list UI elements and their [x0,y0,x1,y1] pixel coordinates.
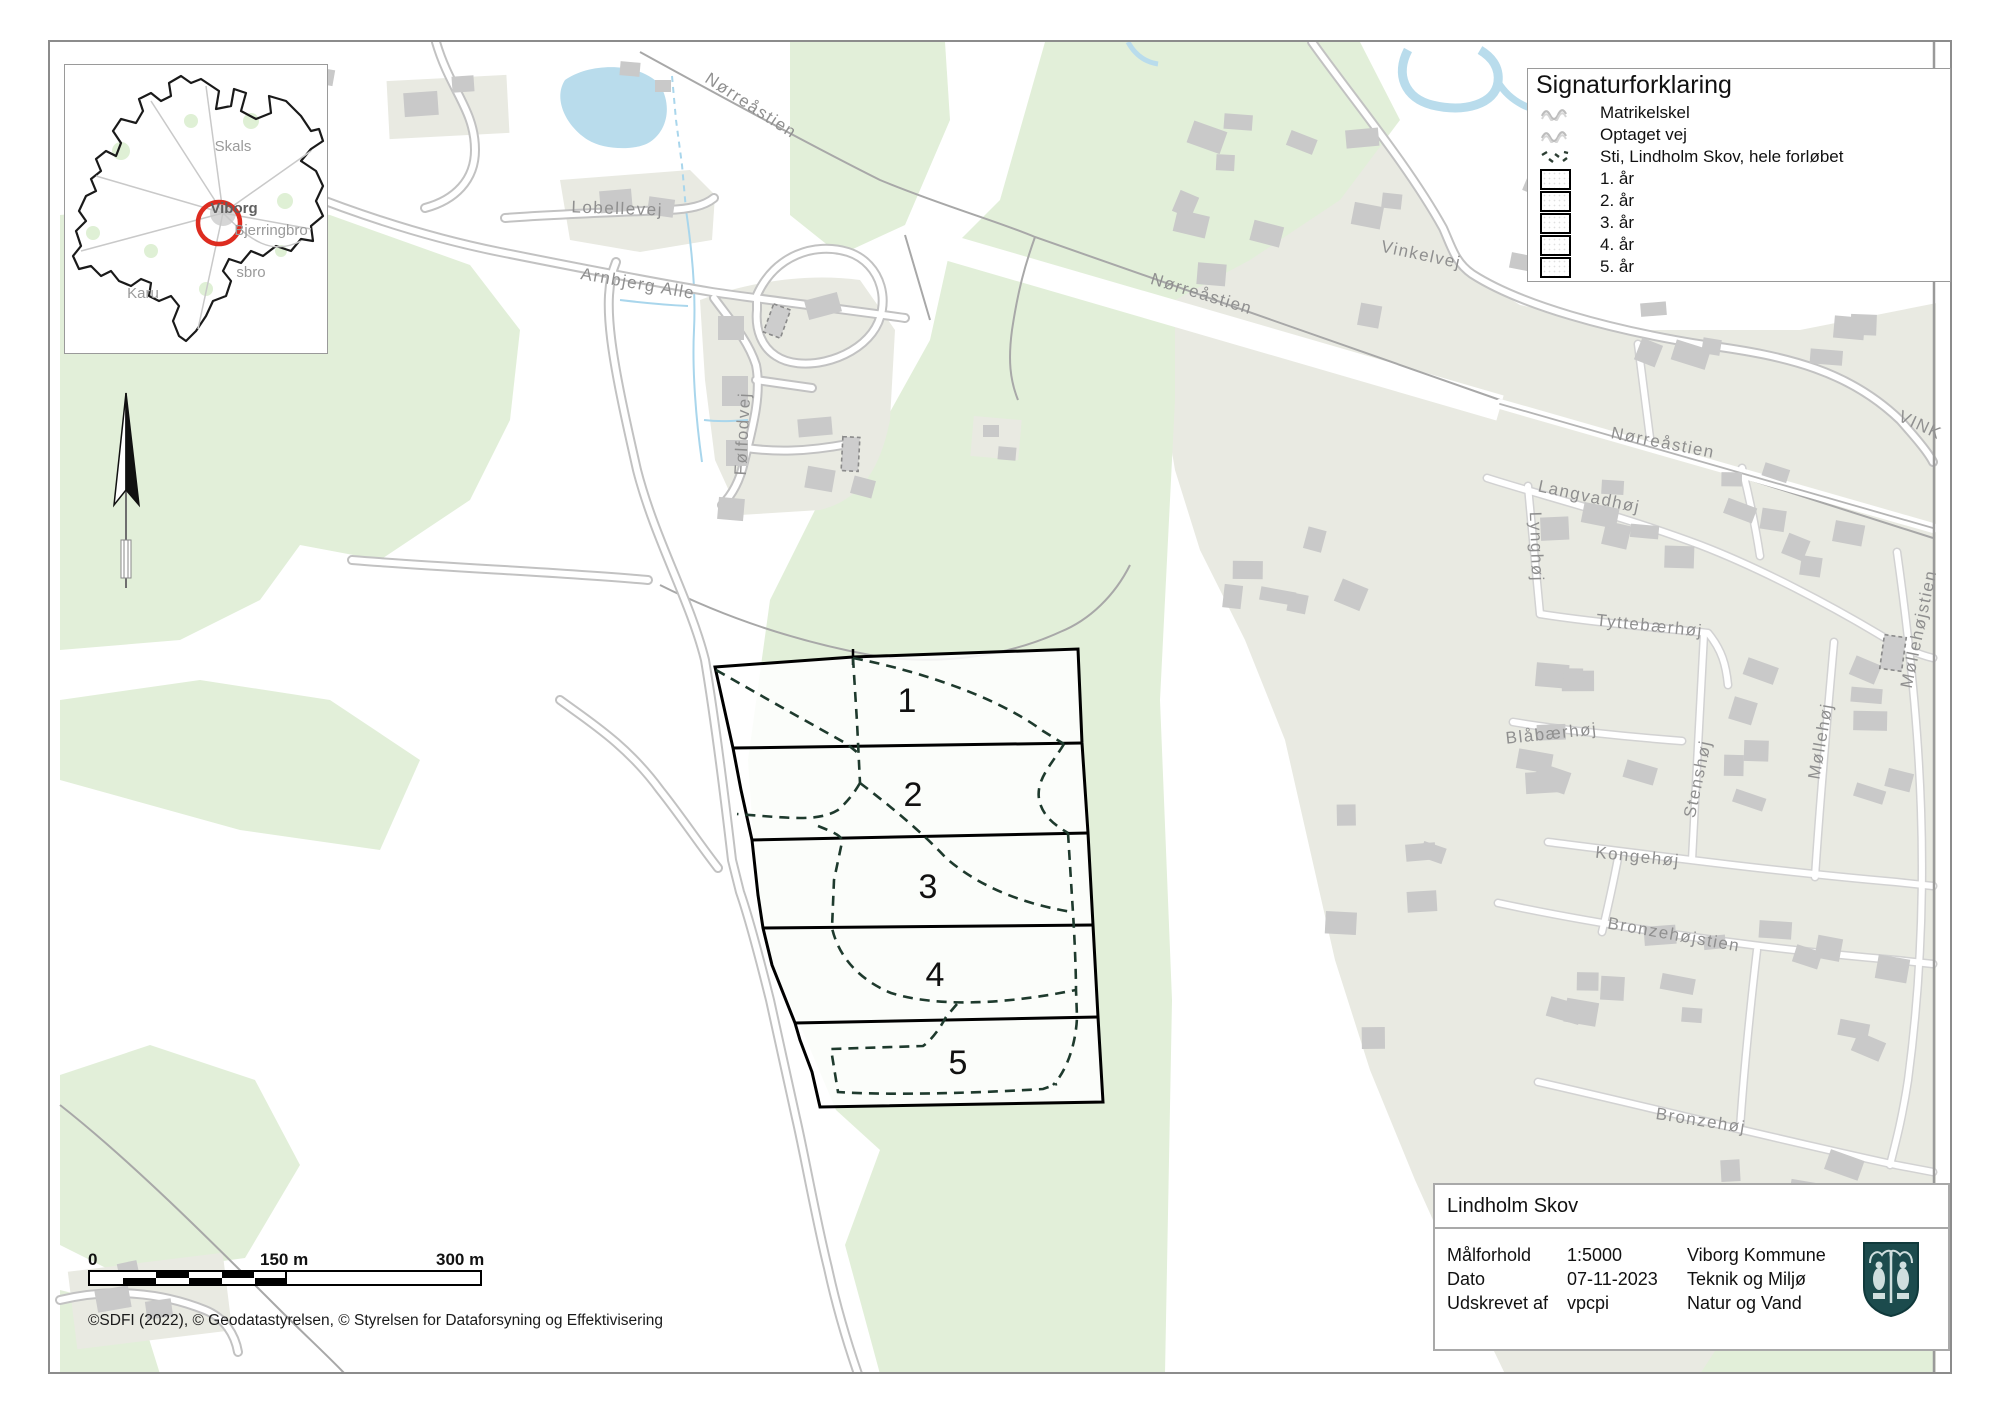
building [1337,804,1356,825]
building [1720,1159,1740,1182]
municipality-crest-icon [1862,1241,1920,1317]
parcel-number: 1 [898,682,917,720]
scale-bar-labels: 0 150 m 300 m [88,1250,588,1270]
building [1721,472,1742,486]
wavy-gray-icon [1536,105,1600,121]
building [1681,1007,1702,1023]
building [1222,584,1243,609]
building [718,316,744,340]
building [1814,935,1843,962]
legend-row: Matrikelskel [1536,102,1942,124]
legend-row: Optaget vej [1536,124,1942,146]
parcel-number: 5 [949,1044,968,1082]
map-print-page: 12345 NørreåstienLobellevejArnbjerg Alle… [0,0,2000,1414]
building [1563,668,1583,691]
building [1345,128,1379,149]
river [1402,50,1498,108]
building [1233,561,1263,579]
legend-item-label: Optaget vej [1600,125,1687,145]
building [1724,755,1744,777]
building [1833,315,1865,340]
building [451,75,474,92]
inset-locator-map: SkalsViborgBjerringbrosbroKaru [64,64,328,354]
street-label: Lobellevej [571,197,663,219]
info-box-title: Lindholm Skov [1433,1183,1950,1229]
building [1362,1027,1385,1049]
info-box-body: MålforholdDatoUdskrevet af 1:500007-11-2… [1433,1229,1950,1351]
building [1216,154,1235,171]
building [1325,911,1357,935]
legend-title: Signaturforklaring [1536,71,1942,100]
info-row-value: 1:5000 [1567,1243,1658,1267]
building [1744,740,1769,762]
building [1630,524,1659,540]
legend-row: 3. år [1536,212,1942,234]
scale-tick-0: 0 [88,1250,97,1270]
legend-item-label: 1. år [1600,169,1634,189]
building [403,91,439,117]
scale-tick-150: 150 m [260,1250,308,1270]
building [1381,192,1402,209]
building [1577,972,1599,991]
info-box: Lindholm Skov MålforholdDatoUdskrevet af… [1433,1183,1950,1351]
street-label: Arnbjerg Alle [579,264,696,303]
area-swatch [1536,169,1600,190]
building [1853,711,1887,731]
inset-svg: SkalsViborgBjerringbrosbroKaru [65,65,327,353]
info-org-line: Natur og Vand [1687,1291,1826,1315]
legend-row: 1. år [1536,168,1942,190]
info-org-line: Teknik og Miljø [1687,1267,1826,1291]
pond [560,67,667,148]
street-label: Nørreåstien [702,69,801,142]
legend-item-label: 3. år [1600,213,1634,233]
info-labels: MålforholdDatoUdskrevet af [1447,1243,1548,1315]
legend-item-label: Matrikelskel [1600,103,1690,123]
info-org-line: Viborg Kommune [1687,1243,1826,1267]
legend-row: 5. år [1536,256,1942,278]
building [655,80,671,92]
legend: Signaturforklaring MatrikelskelOptaget v… [1527,68,1951,282]
legend-row: 2. år [1536,190,1942,212]
inset-place-label: sbro [236,264,265,281]
parcel-number: 2 [904,776,923,814]
building [717,497,745,521]
building [997,446,1016,461]
building [1759,920,1793,940]
info-row-label: Udskrevet af [1447,1291,1548,1315]
area-swatch [1536,235,1600,256]
area-swatch [1536,213,1600,234]
info-org-lines: Viborg KommuneTeknik og MiljøNatur og Va… [1687,1243,1826,1315]
legend-item-label: Sti, Lindholm Skov, hele forløbet [1600,147,1843,167]
legend-row: 4. år [1536,234,1942,256]
building [1405,842,1436,862]
scale-bar-graphic [88,1270,482,1286]
building [983,425,999,437]
inset-place-label: Skals [215,138,252,155]
building [619,61,640,77]
info-row-label: Dato [1447,1267,1548,1291]
building [1850,687,1882,704]
north-arrow [98,385,158,595]
building [1223,113,1252,131]
building [1664,546,1694,569]
scale-tick-300: 300 m [436,1250,484,1270]
dashed-path-icon [1536,149,1600,165]
inset-place-label: Karu [127,285,159,302]
building [1799,555,1823,577]
building [1810,348,1843,365]
attribution-text: ©SDFI (2022), © Geodatastyrelsen, © Styr… [88,1312,663,1330]
parcel-number: 3 [919,868,938,906]
info-row-value: vpcpi [1567,1291,1658,1315]
parcel-number: 4 [926,956,945,994]
wavy-gray-icon [1536,127,1600,143]
info-values: 1:500007-11-2023vpcpi [1567,1243,1658,1315]
inset-place-label: Bjerringbro [234,222,307,239]
scale-bar: 0 150 m 300 m [88,1250,588,1286]
legend-item-label: 4. år [1600,235,1634,255]
building [1357,303,1382,329]
building [1760,508,1787,532]
building [1640,301,1667,317]
building-under-construction [841,437,860,472]
legend-items: MatrikelskelOptaget vejSti, Lindholm Sko… [1536,102,1942,278]
legend-row: Sti, Lindholm Skov, hele forløbet [1536,146,1942,168]
building [1600,976,1625,1001]
inset-place-label: Viborg [210,200,257,217]
info-row-value: 07-11-2023 [1567,1267,1658,1291]
building [797,417,832,438]
area-swatch [1536,257,1600,278]
legend-item-label: 5. år [1600,257,1634,277]
info-row-label: Målforhold [1447,1243,1548,1267]
building [1407,890,1438,912]
legend-item-label: 2. år [1600,191,1634,211]
street-label: Lynghøj [1526,511,1547,582]
area-swatch [1536,191,1600,212]
building [1286,592,1308,614]
